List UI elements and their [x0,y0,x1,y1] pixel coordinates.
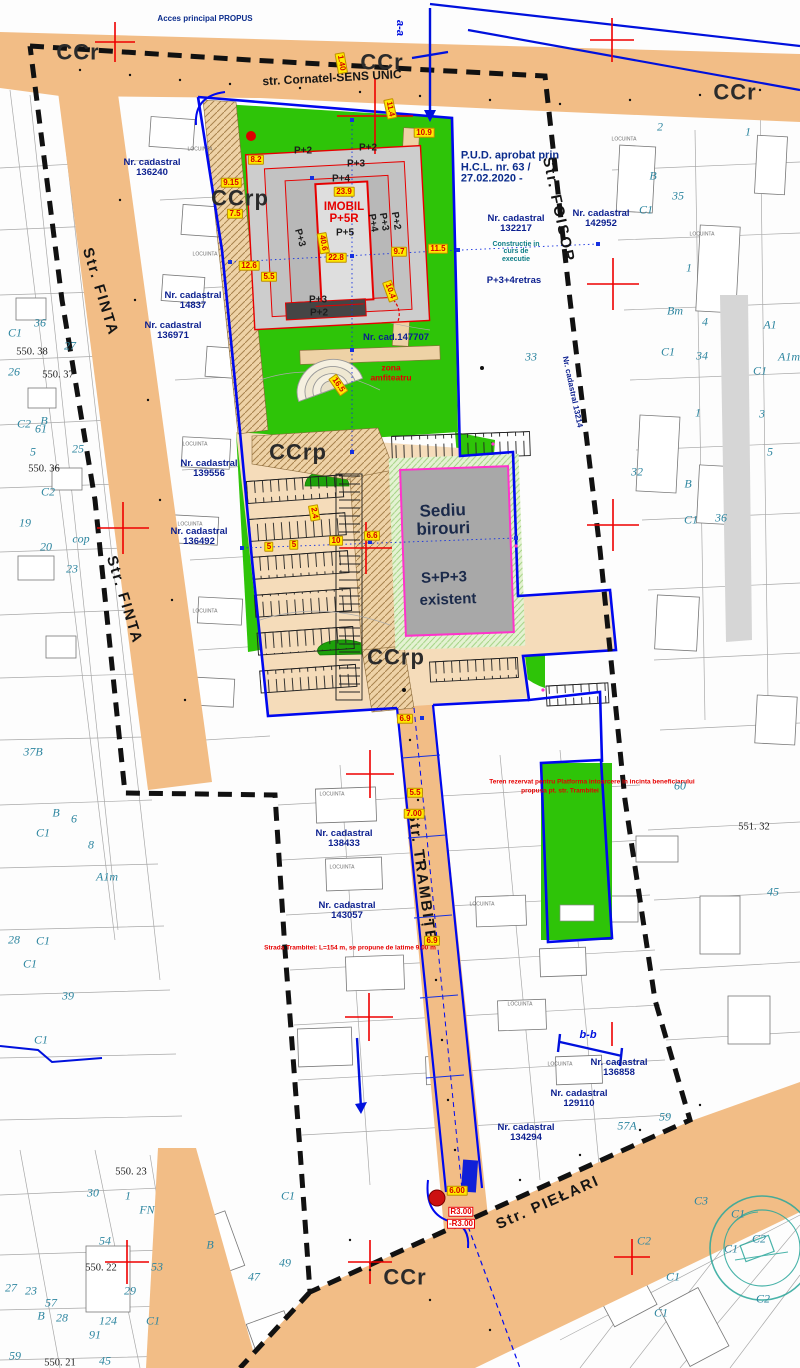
parcel-number: 61 [35,423,47,436]
building-height-label: P+5 [336,229,354,240]
cadastral-number-label: Nr. cadastral 129110 [550,1089,607,1109]
building-height-label: P+3 [347,160,365,171]
parcel-number: C3 [694,1195,708,1208]
parcel-number: B [40,415,47,428]
parcel-number: B [37,1310,44,1323]
red-annotation: Teren rezervat pentru Platforma intoarce… [489,780,694,787]
parcel-number: 3 [759,408,765,421]
house-tiny-label: LOCUINTA [193,609,218,614]
dimension-label: 16.5 [328,374,348,397]
house-tiny-label: LOCUINTA [183,442,208,447]
parcel-number: 4 [702,316,708,329]
zone-code-label: CCr [383,1265,426,1288]
proposed-building-label: P+5R [329,213,358,225]
parcel-number: B [52,807,59,820]
red-annotation: propusa pt. str. Trambitei [521,789,599,796]
dimension-label: 5 [289,540,298,550]
dimension-label: 9.15 [221,178,242,188]
parcel-number: 8 [88,839,94,852]
proposed-building-label: IMOBIL [324,201,364,213]
office-building-label: Sediu birouri [415,501,470,539]
radius-label: -R3.00 [447,1219,475,1229]
parcel-number: C1 [34,1034,48,1047]
parcel-number: 23 [25,1285,37,1298]
house-tiny-label: LOCUINTA [612,137,637,142]
dimension-label: 1.40 [334,52,348,74]
survey-number: 550. 36 [28,463,60,474]
parcel-number: C1 [654,1307,668,1320]
parcel-number: A1m [778,351,800,364]
parcel-number: 47 [248,1271,260,1284]
red-annotation: Strada Trambitei: L=154 m, se propune de… [264,946,436,953]
parcel-number: C1 [8,327,22,340]
parcel-number: 1 [686,262,692,275]
parcel-number: 23 [66,563,78,576]
zone-code-label: CCrp [367,645,425,668]
street-name-label: str. Cornatel-SENS UNIC [262,68,402,88]
house-tiny-label: LOCUINTA [188,147,213,152]
street-name-label: Str. FINTA [103,554,145,646]
street-name-label: Str. PIEŁARI [494,1173,602,1233]
parcel-number: 53 [151,1261,163,1274]
survey-number: 550. 38 [16,346,48,357]
parcel-number: C2 [17,418,31,431]
survey-number: 551. 32 [738,821,770,832]
street-name-label: Str. FOISOR [539,156,577,265]
parcel-number: C1 [146,1315,160,1328]
parcel-number: 39 [62,990,74,1003]
parcel-number: C1 [661,346,675,359]
parcel-number: C1 [36,827,50,840]
parcel-number: 36 [34,317,46,330]
cadastral-number-label: Nr. cadastral 14837 [164,291,221,311]
dimension-label: 10 [329,536,343,546]
house-tiny-label: LOCUINTA [470,902,495,907]
parcel-number: C1 [23,958,37,971]
parcel-number: C1 [731,1208,745,1221]
parcel-number: C1 [753,365,767,378]
survey-number: 550. 21 [44,1357,76,1368]
cadastral-number-label: Nr. cadastral 132217 [487,214,544,234]
dimension-label: 40.6 [316,232,330,254]
cadastral-number-label: Nr. cadastral 142952 [572,209,629,229]
parcel-number: 19 [19,517,31,530]
parcel-number: 1 [125,1190,131,1203]
dimension-label: 22.8 [326,253,347,263]
dimension-label: 12.6 [239,261,260,271]
building-height-label: P+4 [365,213,379,233]
parcel-number: 33 [525,351,537,364]
survey-number: 550. 23 [115,1166,147,1177]
parcel-number: Bm [667,305,683,318]
zone-code-label: CCr [713,80,756,103]
parcel-number: B [206,1239,213,1252]
parcel-number: C1 [724,1243,738,1256]
dimension-label: 11.5 [428,244,448,254]
parcel-number: 27 [64,340,76,353]
parcel-number: 32 [631,466,643,479]
parcel-number: B [684,478,691,491]
parcel-number: C1 [639,204,653,217]
parcel-number: 60 [674,780,686,793]
section-mark-label: b-b [579,1030,596,1042]
dimension-label: 11.4 [383,98,397,120]
dimension-label: 2.4 [307,504,320,522]
cadastral-number-label: P+3+4retras [487,276,541,286]
parcel-number: 27 [5,1282,17,1295]
dimension-label: 5.5 [261,272,277,282]
construction-status-note: Constructie in curs de executie [492,241,539,263]
parcel-number: 20 [40,541,52,554]
cadastral-number-label: Nr. cadastral 143057 [318,901,375,921]
parcel-number: 34 [696,350,708,363]
parcel-number: 1 [695,407,701,420]
parcel-number: 5 [767,446,773,459]
parcel-number: C1 [666,1271,680,1284]
dimension-label: 8.2 [248,155,264,165]
pud-approval-note: P.U.D. aprobat prin H.C.L. nr. 63 / 27.0… [461,151,559,186]
parcel-number: C2 [637,1235,651,1248]
parcel-number: 59 [659,1111,671,1124]
cadastral-number-label: Nr. cadastral 138433 [315,829,372,849]
section-mark-label: a-a [393,20,405,36]
parcel-number: 35 [672,190,684,203]
street-name-label: Str. TRAMBIȚEI [405,811,440,950]
parcel-number: A1 [763,319,776,332]
dimension-label: 10.4 [382,280,399,303]
building-height-label: P+3 [376,212,390,232]
office-building-label: existent [419,591,476,609]
parcel-number: 28 [56,1312,68,1325]
office-building-label: S+P+3 [421,569,467,586]
parcel-number: 57A [617,1120,636,1133]
dimension-label: 5 [264,542,273,552]
red-annotation: zona [381,364,400,373]
parcel-number: 1 [745,126,751,139]
zone-code-label: CCr [360,50,403,73]
house-tiny-label: LOCUINTA [193,252,218,257]
parcel-number: C2 [756,1293,770,1306]
parcel-number: C1 [684,514,698,527]
building-height-label: P+3 [292,228,307,248]
building-height-label: P+2 [310,309,328,320]
parcel-number: 30 [87,1187,99,1200]
dimension-label: 6.00 [447,1186,468,1196]
parcel-number: 2 [657,121,663,134]
zone-code-label: CCr [56,40,99,63]
access-note-label: Acces principal PROPUS [157,15,252,23]
parcel-number: 45 [767,886,779,899]
cadastral-number-label: Nr. cadastral 13214 [560,356,583,429]
parcel-number: 37B [23,746,42,759]
house-tiny-label: LOCUINTA [548,1062,573,1067]
building-height-label: P+2 [388,211,402,231]
cadastral-number-label: Nr. cadastral 136240 [123,158,180,178]
dimension-label: 10.9 [414,128,435,138]
dimension-label: 6.6 [364,531,380,541]
parcel-number: A1m [96,871,118,884]
parcel-number: 124 [99,1315,117,1328]
parcel-number: 91 [89,1329,101,1342]
cadastral-number-label: Nr. cadastral 136858 [590,1058,647,1078]
site-plan-map: CCrCCrCCrCCrpCCrpCCrpCCrstr. Cornatel-SE… [0,0,800,1368]
house-tiny-label: LOCUINTA [320,792,345,797]
dimension-label: 5.5 [407,788,423,798]
dimension-label: 23.9 [334,187,355,197]
cadastral-number-label: Nr. cadastral 139556 [180,459,237,479]
red-annotation: amfiteatru [370,374,411,383]
parcel-number: 6 [71,813,77,826]
dimension-label: 6.9 [397,714,413,724]
dimension-label: 9.7 [391,247,407,257]
zone-code-label: CCrp [211,186,269,209]
building-height-label: P+4 [332,175,350,186]
parcel-number: 59 [9,1350,21,1363]
house-tiny-label: LOCUINTA [330,865,355,870]
parcel-number: 25 [72,443,84,456]
house-tiny-label: LOCUINTA [178,522,203,527]
survey-number: 550. 37 [42,369,74,380]
parcel-number: 49 [279,1257,291,1270]
parcel-number: 26 [8,366,20,379]
cadastral-number-label: Nr. cadastral 134294 [497,1123,554,1143]
parcel-number: 29 [124,1285,136,1298]
radius-label: R3.00 [448,1207,473,1217]
parcel-number: C1 [281,1190,295,1203]
house-tiny-label: LOCUINTA [690,232,715,237]
parcel-number: 57 [45,1297,57,1310]
building-height-label: P+2 [359,144,377,155]
survey-number: 550. 22 [85,1262,117,1273]
parcel-number: cop [72,533,89,546]
cadastral-number-label: Nr. cad.147707 [363,333,429,343]
parcel-number: 5 [30,446,36,459]
dimension-label: 7.5 [227,209,243,219]
cadastral-number-label: Nr. cadastral 136492 [170,527,227,547]
parcel-number: 36 [715,512,727,525]
dimension-label: 6.9 [424,936,440,946]
house-tiny-label: LOCUINTA [508,1002,533,1007]
parcel-number: B [649,170,656,183]
parcel-number: 45 [99,1355,111,1368]
zone-code-label: CCrp [269,440,327,463]
dimension-label: 7.00 [404,809,425,819]
parcel-number: FN [139,1204,154,1217]
parcel-number: 28 [8,934,20,947]
parcel-number: C2 [41,486,55,499]
parcel-number: 54 [99,1235,111,1248]
cadastral-number-label: Nr. cadastral 136971 [144,321,201,341]
building-height-label: P+2 [294,147,312,158]
building-height-label: P+3 [309,296,327,307]
map-labels-layer: CCrCCrCCrCCrpCCrpCCrpCCrstr. Cornatel-SE… [0,0,800,1368]
parcel-number: C1 [36,935,50,948]
parcel-number: C2 [752,1233,766,1246]
street-name-label: Str. FINTA [79,246,121,338]
